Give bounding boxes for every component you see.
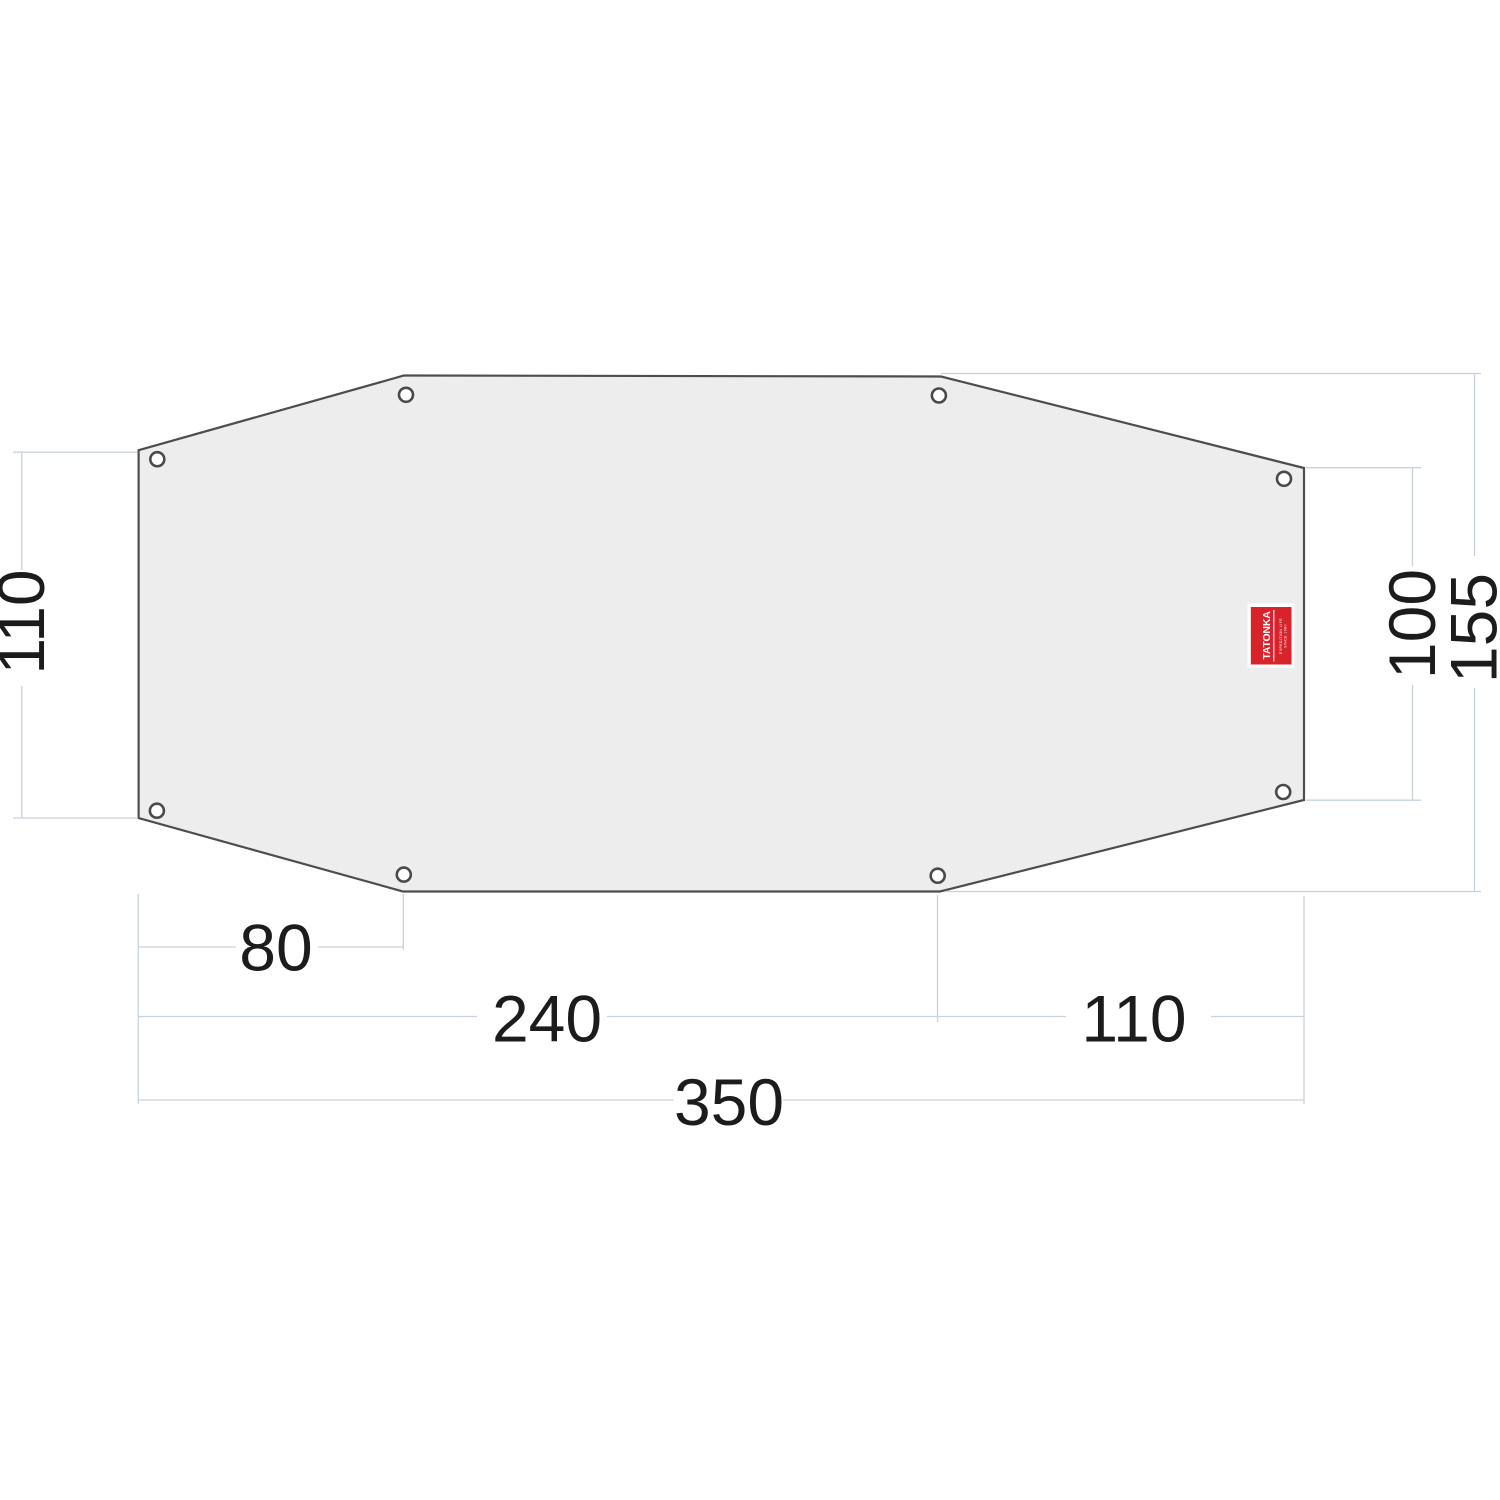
svg-text:EXPEDITION LIFE: EXPEDITION LIFE: [1279, 618, 1283, 654]
svg-text:TATONKA: TATONKA: [1261, 611, 1273, 660]
svg-text:80: 80: [239, 911, 312, 985]
svg-text:240: 240: [492, 982, 602, 1056]
svg-text:SINCE 1980: SINCE 1980: [1284, 624, 1288, 648]
svg-text:110: 110: [0, 569, 58, 674]
svg-text:110: 110: [1081, 982, 1186, 1056]
svg-text:155: 155: [1437, 573, 1500, 683]
svg-text:350: 350: [674, 1065, 784, 1139]
